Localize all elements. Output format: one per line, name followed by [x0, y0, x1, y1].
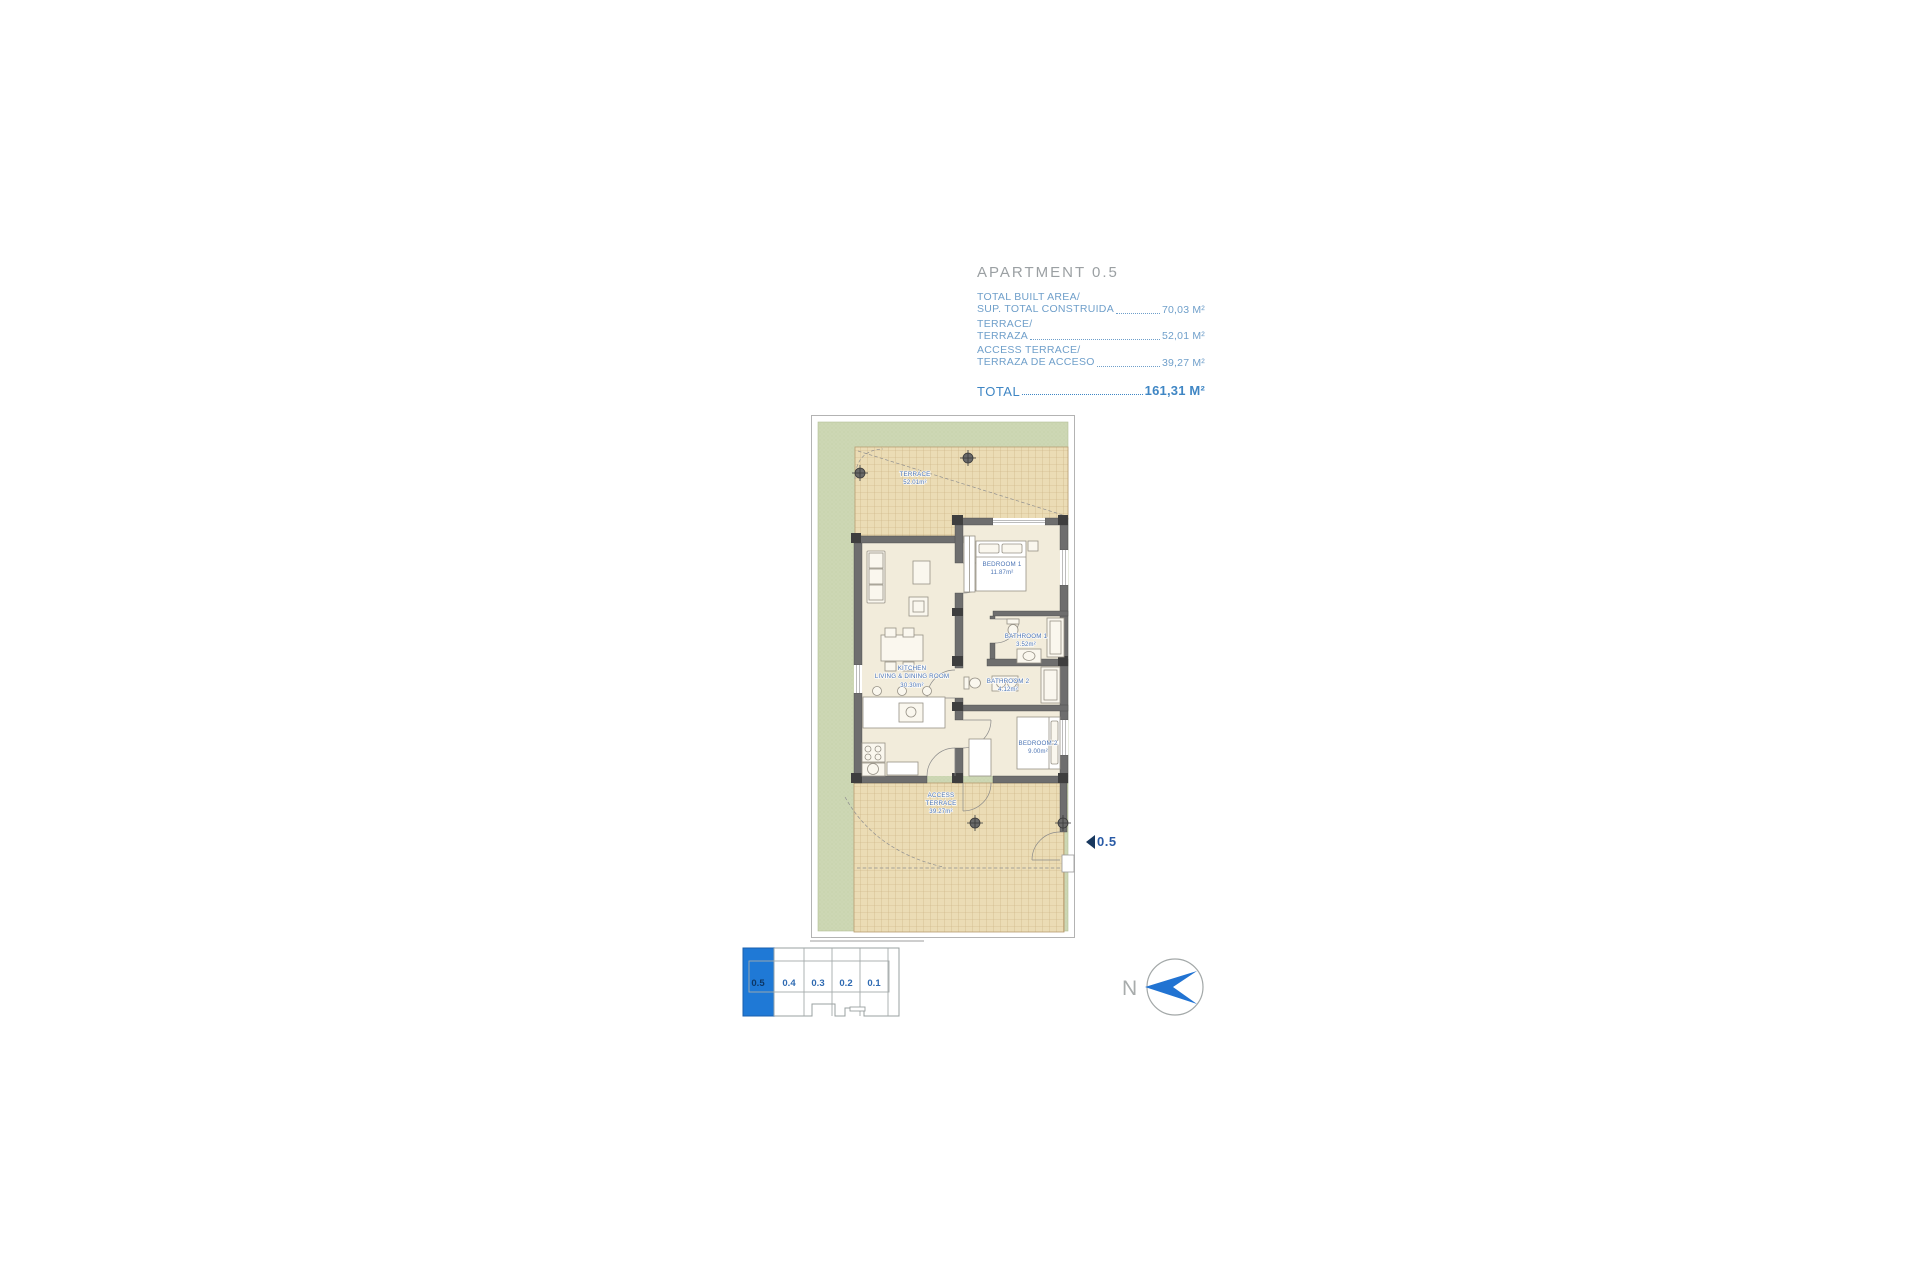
unit-entrance-label: 0.5	[1097, 834, 1117, 849]
svg-text:39.27m²: 39.27m²	[929, 809, 952, 815]
unit-entrance-marker: 0.5	[1086, 834, 1117, 849]
svg-text:9.00m²: 9.00m²	[1028, 749, 1048, 755]
locator-unit-0-1: 0.1	[867, 978, 881, 989]
svg-text:4.12m²: 4.12m²	[998, 687, 1018, 693]
locator-unit-0-4: 0.4	[782, 978, 796, 989]
area-value: 70,03 M²	[1162, 304, 1205, 316]
total-value: 161,31 M²	[1145, 383, 1205, 398]
svg-text:BATHROOM 1: BATHROOM 1	[1005, 633, 1048, 640]
dotted-leader	[1097, 366, 1160, 367]
dotted-leader	[1030, 339, 1160, 340]
area-label-es: TERRAZA	[977, 331, 1028, 343]
area-value: 52,01 M²	[1162, 330, 1205, 342]
svg-text:3.52m²: 3.52m²	[1016, 642, 1036, 648]
entry-slot	[850, 1007, 865, 1011]
svg-text:30.30m²: 30.30m²	[900, 683, 923, 689]
dotted-leader	[1116, 313, 1160, 314]
area-label: TERRACE/	[977, 319, 1205, 331]
locator-unit-0-2: 0.2	[839, 978, 852, 989]
exterior-landing	[1062, 855, 1074, 872]
total-label: TOTAL	[977, 386, 1020, 398]
area-entry-terrace: TERRACE/ TERRAZA 52,01 M²	[977, 319, 1205, 343]
entrance-arrow-icon	[1086, 835, 1095, 849]
svg-text:TERRACE: TERRACE	[926, 800, 957, 807]
svg-text:BEDROOM 1: BEDROOM 1	[983, 561, 1022, 568]
area-entry-access-terrace: ACCESS TERRACE/ TERRAZA DE ACCESO 39,27 …	[977, 345, 1205, 369]
total-row: TOTAL 161,31 M²	[977, 383, 1205, 398]
area-label: TOTAL BUILT AREA/	[977, 292, 1205, 304]
svg-text:ACCESS: ACCESS	[928, 792, 955, 799]
building-locator: 0.5 0.4 0.3 0.2 0.1	[740, 938, 930, 1031]
svg-text:52.01m²: 52.01m²	[903, 480, 926, 486]
svg-text:BEDROOM 2: BEDROOM 2	[1019, 740, 1058, 747]
svg-text:TERRACE: TERRACE	[900, 471, 931, 478]
floor-plan: TERRACE 52.01m² BEDROOM 1 11.87m² BATHRO…	[811, 415, 1075, 938]
svg-text:LIVING & DINING ROOM: LIVING & DINING ROOM	[875, 673, 949, 680]
dotted-leader	[1022, 394, 1142, 395]
svg-text:BATHROOM 2: BATHROOM 2	[987, 678, 1030, 685]
page-title: APARTMENT 0.5	[977, 264, 1205, 281]
area-label: ACCESS TERRACE/	[977, 345, 1205, 357]
locator-unit-0-3: 0.3	[811, 978, 824, 989]
access-terrace-floor	[854, 783, 1064, 932]
north-label: N	[1122, 977, 1137, 1000]
locator-unit-0-5: 0.5	[751, 978, 765, 989]
page: APARTMENT 0.5 TOTAL BUILT AREA/ SUP. TOT…	[0, 0, 1920, 1280]
room-label-access-terrace: ACCESS TERRACE 39.27m²	[926, 792, 957, 815]
north-arrow-icon	[1145, 971, 1197, 1004]
area-summary: APARTMENT 0.5 TOTAL BUILT AREA/ SUP. TOT…	[977, 264, 1205, 398]
north-compass: N	[1118, 948, 1233, 1033]
area-entry-built: TOTAL BUILT AREA/ SUP. TOTAL CONSTRUIDA …	[977, 292, 1205, 316]
area-value: 39,27 M²	[1162, 357, 1205, 369]
svg-text:11.87m²: 11.87m²	[991, 570, 1014, 576]
svg-text:KITCHEN: KITCHEN	[898, 665, 927, 672]
area-label-es: SUP. TOTAL CONSTRUIDA	[977, 304, 1114, 316]
area-label-es: TERRAZA DE ACCESO	[977, 357, 1095, 369]
